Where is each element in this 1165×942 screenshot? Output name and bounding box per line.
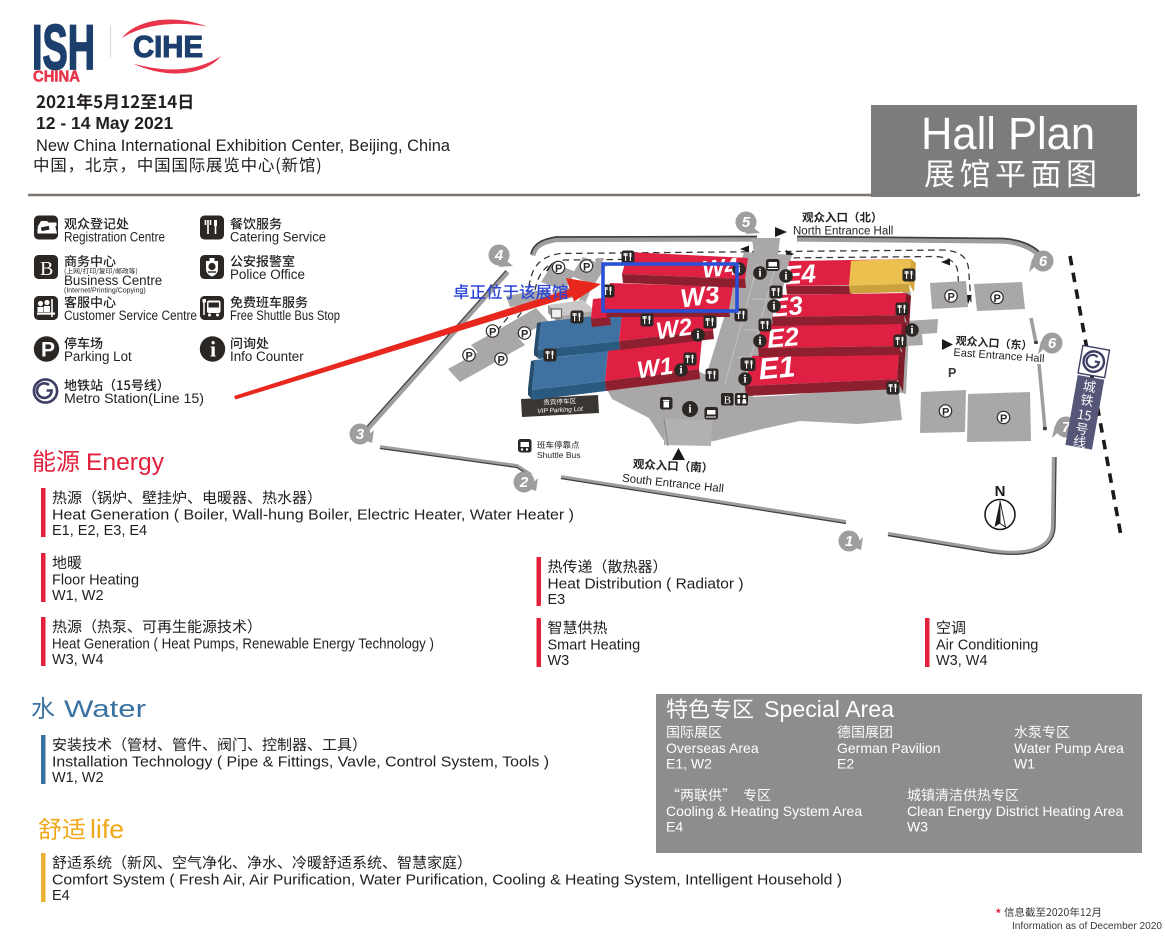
- svg-text:Shuttle Bus: Shuttle Bus: [537, 450, 580, 460]
- svg-text:Clean Energy District Heating: Clean Energy District Heating Area: [907, 803, 1124, 819]
- svg-text:W3, W4: W3, W4: [52, 652, 104, 668]
- svg-text:Info Counter: Info Counter: [230, 349, 304, 364]
- svg-text:P: P: [948, 366, 956, 380]
- svg-text:W3, W4: W3, W4: [936, 653, 988, 669]
- svg-text:2: 2: [519, 474, 529, 491]
- svg-text:Business Centre: Business Centre: [64, 273, 162, 288]
- svg-text:Comfort System ( Fresh Air, A: Comfort System ( Fresh Air, Air Purifica…: [52, 873, 842, 889]
- svg-text:Overseas Area: Overseas Area: [666, 740, 759, 756]
- svg-text:Heat Distribution ( Radiator ): Heat Distribution ( Radiator ): [548, 577, 744, 593]
- svg-text:E1, W2: E1, W2: [666, 756, 712, 772]
- svg-text:P: P: [521, 329, 528, 341]
- svg-text:W1, W2: W1, W2: [52, 770, 104, 786]
- svg-text:Water: Water: [64, 696, 146, 723]
- svg-text:Free Shuttle Bus Stop: Free Shuttle Bus Stop: [230, 308, 340, 323]
- svg-text:Hall Plan: Hall Plan: [921, 108, 1095, 159]
- svg-text:Energy: Energy: [86, 449, 164, 476]
- svg-text:Police Office: Police Office: [230, 267, 305, 282]
- svg-text:Floor Heating: Floor Heating: [52, 573, 139, 589]
- svg-text:P: P: [466, 351, 473, 363]
- svg-text:New China International Exhibi: New China International Exhibition Cente…: [36, 136, 451, 155]
- svg-text:Heat Generation ( Boiler, Wal: Heat Generation ( Boiler, Wall-hung Boil…: [52, 508, 574, 524]
- svg-text:Air Conditioning: Air Conditioning: [936, 638, 1038, 654]
- svg-text:P: P: [994, 293, 1001, 305]
- svg-text:Registration Centre: Registration Centre: [64, 230, 165, 245]
- svg-text:Customer Service Centre: Customer Service Centre: [64, 308, 197, 323]
- svg-text:E2: E2: [837, 756, 854, 772]
- svg-text:Parking Lot: Parking Lot: [64, 349, 132, 364]
- svg-text:German Pavilion: German Pavilion: [837, 740, 941, 756]
- svg-text:P: P: [555, 263, 562, 275]
- svg-text:Water Pump Area: Water Pump Area: [1014, 740, 1124, 756]
- svg-text:E3: E3: [548, 592, 566, 608]
- svg-text:3: 3: [356, 426, 365, 443]
- svg-text:Special Area: Special Area: [764, 696, 894, 722]
- svg-text:B: B: [40, 258, 53, 280]
- svg-text:Information as of December 202: Information as of December 2020: [1012, 921, 1162, 932]
- svg-text:E4: E4: [666, 819, 683, 835]
- svg-text:W3: W3: [907, 819, 928, 835]
- svg-text:B: B: [724, 395, 731, 407]
- svg-text:W1: W1: [635, 353, 674, 385]
- svg-text:Catering Service: Catering Service: [230, 230, 326, 245]
- svg-text:P: P: [942, 407, 949, 419]
- svg-text:Installation Technology ( Pipe: Installation Technology ( Pipe & Fitting…: [52, 755, 549, 771]
- svg-text:6: 6: [1048, 335, 1057, 352]
- svg-text:*: *: [996, 906, 1001, 920]
- svg-text:CHINA: CHINA: [33, 69, 80, 86]
- svg-text:P: P: [583, 262, 590, 274]
- svg-text:E4: E4: [52, 888, 70, 904]
- svg-text:Cooling & Heating System Area: Cooling & Heating System Area: [666, 803, 862, 819]
- svg-text:Metro Station(Line 15): Metro Station(Line 15): [64, 391, 204, 406]
- svg-text:W1, W2: W1, W2: [52, 588, 104, 604]
- svg-text:1: 1: [845, 533, 853, 550]
- svg-text:P: P: [41, 339, 55, 362]
- svg-text:6: 6: [1039, 253, 1048, 270]
- svg-text:5: 5: [742, 214, 751, 231]
- svg-text:North Entrance Hall: North Entrance Hall: [793, 226, 893, 238]
- svg-text:Heat Generation ( Heat Pumps,: Heat Generation ( Heat Pumps, Renewable …: [52, 637, 434, 653]
- svg-text:12 - 14 May 2021: 12 - 14 May 2021: [36, 113, 173, 133]
- svg-text:W1: W1: [1014, 756, 1035, 772]
- svg-text:W2: W2: [654, 314, 694, 346]
- svg-text:4: 4: [494, 247, 504, 264]
- svg-text:P: P: [948, 292, 955, 304]
- svg-text:(Internet/Printing/Copying): (Internet/Printing/Copying): [64, 288, 146, 295]
- svg-text:P: P: [498, 355, 505, 367]
- svg-text:life: life: [90, 814, 124, 844]
- svg-text:P: P: [489, 327, 496, 339]
- svg-text:W3: W3: [548, 653, 570, 669]
- svg-text:i: i: [210, 337, 216, 362]
- svg-text:N: N: [995, 483, 1006, 500]
- svg-text:P: P: [1000, 413, 1007, 425]
- svg-text:CIHE: CIHE: [133, 29, 203, 64]
- svg-text:E1, E2, E3, E4: E1, E2, E3, E4: [52, 523, 147, 539]
- svg-text:Smart Heating: Smart Heating: [548, 638, 641, 654]
